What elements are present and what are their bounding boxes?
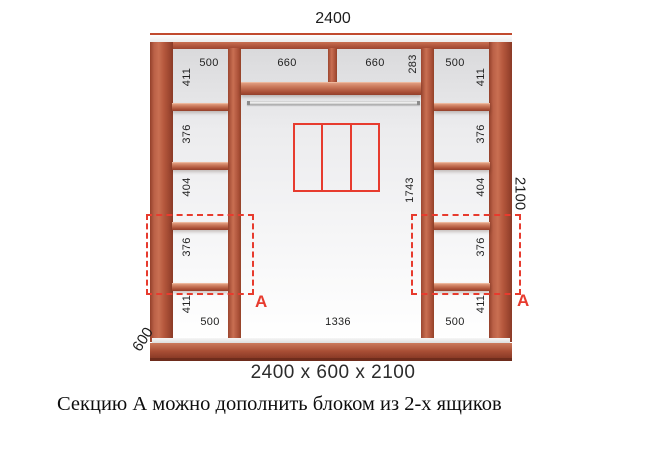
- top-shelf: [241, 82, 421, 95]
- top-shelf-left-width-label: 660: [262, 57, 312, 69]
- left-section-height-1: 411: [181, 57, 193, 97]
- right-section-height-2: 376: [475, 114, 487, 154]
- drawer-cell: [321, 125, 349, 190]
- left-shelf-1: [172, 103, 228, 111]
- left-column-bottom-width-label: 500: [185, 316, 235, 328]
- right-shelf-1: [434, 103, 490, 111]
- drawer-cell: [295, 125, 321, 190]
- left-section-height-4: 376: [181, 227, 193, 267]
- section-a-box-left: [146, 214, 254, 295]
- right-section-height-1: 411: [475, 57, 487, 97]
- overall-height-label: 2100: [512, 169, 529, 219]
- top-middle-divider: [328, 48, 337, 84]
- top-shelf-right-width-label: 660: [350, 57, 400, 69]
- left-section-height-3: 404: [181, 167, 193, 207]
- right-inner-divider: [421, 48, 434, 341]
- left-section-height-2: 376: [181, 114, 193, 154]
- section-a-marker-left: А: [255, 292, 267, 312]
- right-section-height-4: 376: [475, 227, 487, 267]
- left-inner-divider: [228, 48, 241, 341]
- right-section-height-3: 404: [475, 167, 487, 207]
- size-summary: 2400 x 600 x 2100: [233, 362, 433, 384]
- wardrobe-dimension-diagram: 2400 А А 500 660 660 283 500 411 376 404…: [0, 0, 660, 452]
- right-outer-wall: [489, 42, 512, 342]
- hanging-rod: [247, 101, 420, 105]
- caption-text: Секцию А можно дополнить блоком из 2-х я…: [57, 393, 502, 416]
- middle-bottom-width-label: 1336: [308, 316, 368, 328]
- right-column-width-label: 500: [430, 57, 480, 69]
- top-section-height-label: 283: [407, 44, 419, 84]
- middle-open-height-label: 1743: [404, 168, 416, 212]
- drawer-block-icon: [293, 123, 380, 192]
- left-outer-wall: [150, 42, 173, 342]
- overall-width-label: 2400: [283, 10, 383, 28]
- section-a-marker-right: А: [517, 291, 529, 311]
- cabinet-base-panel: [150, 343, 512, 361]
- right-column-bottom-width-label: 500: [430, 316, 480, 328]
- drawer-cell: [350, 125, 378, 190]
- section-a-box-right: [411, 214, 521, 295]
